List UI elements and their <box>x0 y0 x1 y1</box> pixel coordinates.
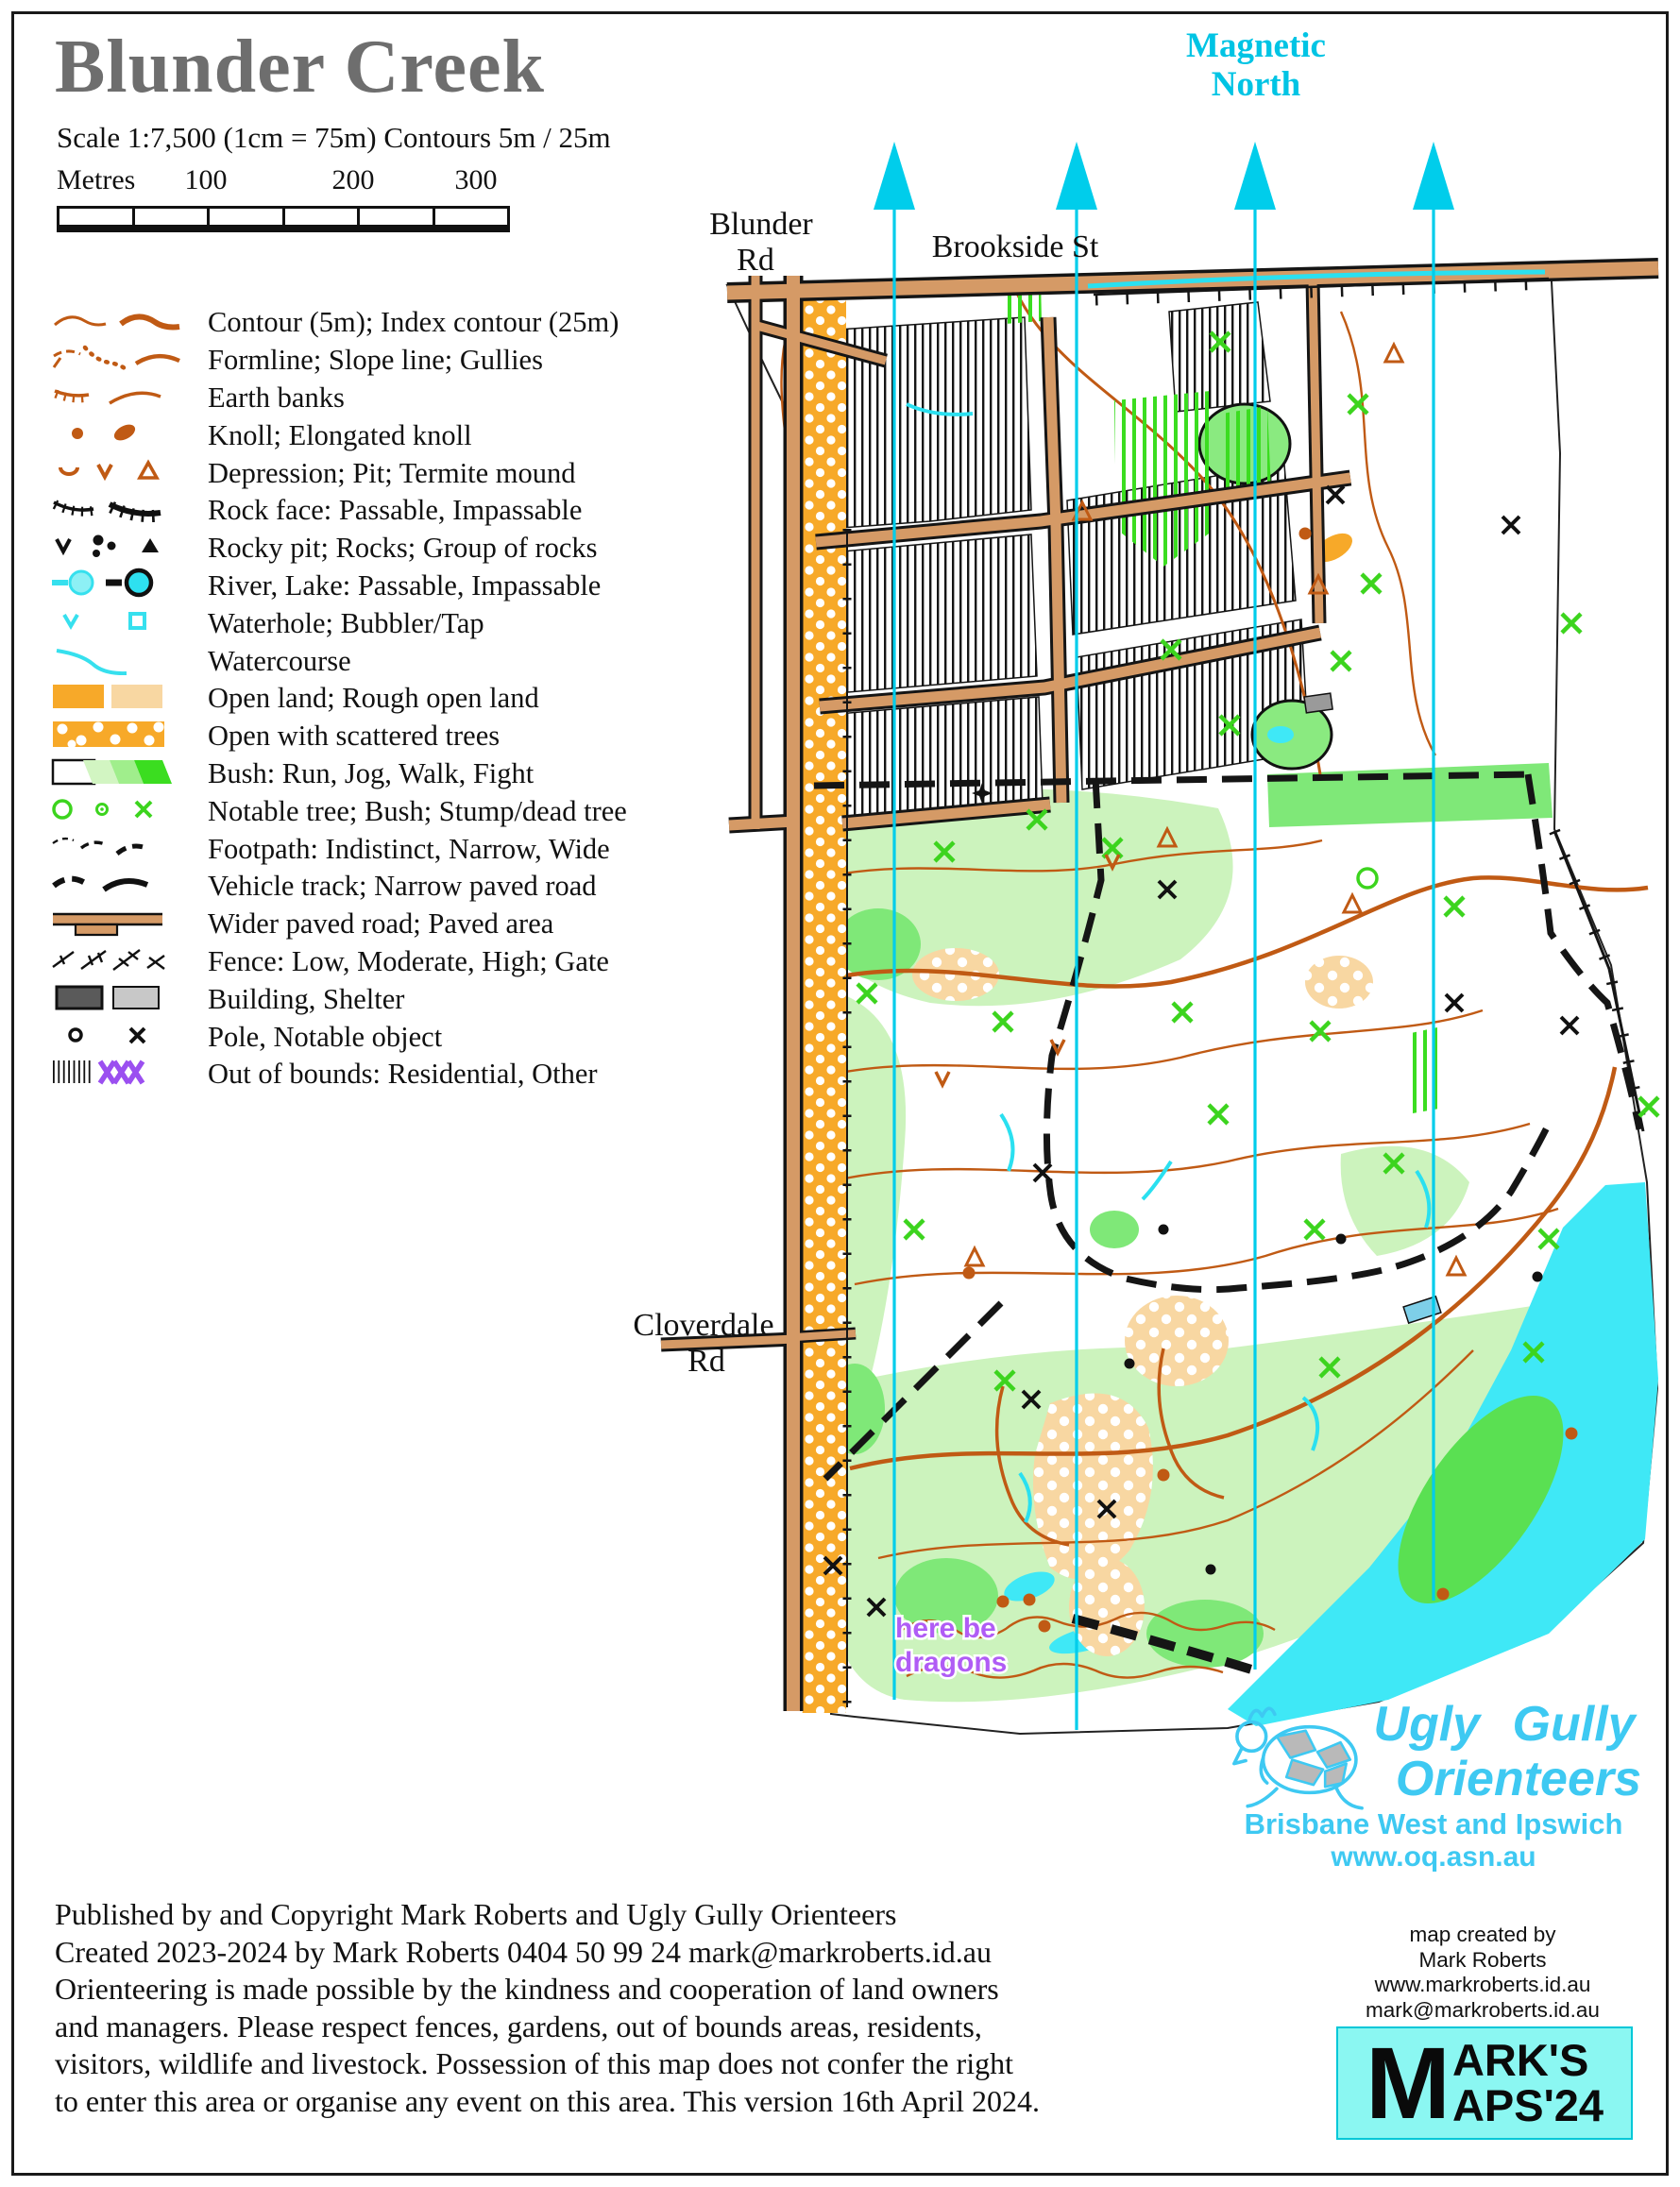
credit-line: mark@markroberts.id.au <box>1322 1998 1643 2024</box>
club-name-line1: Ugly Gully <box>1358 1696 1651 1753</box>
legend-item-label: Pole, Notable object <box>208 1021 442 1054</box>
fence-icon <box>49 943 208 980</box>
copyright-line: Created 2023-2024 by Mark Roberts 0404 5… <box>55 1934 1254 1972</box>
wider-road-icon <box>49 906 208 942</box>
open-scattered-icon <box>49 718 208 754</box>
legend-item-label: Building, Shelter <box>208 983 404 1016</box>
contour-icon <box>49 304 208 341</box>
map-symbol-bdot <box>1566 1428 1578 1440</box>
river-lake-icon <box>49 568 208 604</box>
club-logo-block: Ugly Gully Orienteers Brisbane West and … <box>1216 1692 1651 1909</box>
metres-label: Metres <box>57 164 135 196</box>
cloverdale-rd-label-2: Rd <box>687 1344 725 1379</box>
legend-item-label: Bush: Run, Jog, Walk, Fight <box>208 757 534 790</box>
scale-bar <box>57 206 510 232</box>
map-symbol-bdot <box>1158 1469 1170 1482</box>
watercourse-icon <box>49 643 208 680</box>
copyright-line: Orienteering is made possible by the kin… <box>55 1971 1254 2009</box>
club-name-line2: Orienteers <box>1377 1751 1660 1807</box>
marks-maps-logo: M ARK'S APS'24 <box>1336 2026 1633 2140</box>
magnetic-north-arrowhead-icon <box>1234 142 1276 210</box>
orienteering-map: Blunder Rd Brookside St Cloverdale Rd he… <box>491 123 1672 1747</box>
legend-item-label: Open land; Rough open land <box>208 682 539 715</box>
magnetic-north-line2: North <box>1114 65 1398 104</box>
copyright-paragraph: Published by and Copyright Mark Roberts … <box>55 1896 1254 2121</box>
legend-item-label: Waterhole; Bubbler/Tap <box>208 607 484 640</box>
vehicle-track-icon <box>49 868 208 905</box>
credit-line: Mark Roberts <box>1322 1948 1643 1974</box>
waterhole-icon <box>49 605 208 642</box>
blunder-rd-label-2: Rd <box>737 243 774 278</box>
map-symbol-bdot <box>1039 1620 1051 1633</box>
copyright-line: and managers. Please respect fences, gar… <box>55 2009 1254 2046</box>
map-symbol-kdot <box>1206 1565 1216 1575</box>
bush-icon <box>49 755 208 792</box>
magnetic-north-arrowhead-icon <box>1056 142 1097 210</box>
rock-face-icon <box>49 492 208 529</box>
rocky-pit-icon <box>49 530 208 567</box>
map-symbol-kdot <box>1336 1234 1347 1245</box>
map-symbol-gx <box>1639 1097 1658 1116</box>
pole-icon <box>49 1019 208 1056</box>
page-title: Blunder Creek <box>55 25 545 110</box>
blunder-rd-label-1: Blunder <box>709 207 813 242</box>
earth-banks-icon <box>49 380 208 416</box>
magnetic-north-label: Magnetic North <box>1114 26 1398 105</box>
notable-tree-icon <box>49 793 208 830</box>
legend-item-label: Earth banks <box>208 381 345 415</box>
oob-icon <box>49 1056 208 1093</box>
credit-line: www.markroberts.id.au <box>1322 1973 1643 1998</box>
cloverdale-rd-label-1: Cloverdale <box>633 1308 773 1343</box>
map-symbol-kdot <box>1125 1359 1135 1369</box>
scattered-trees-corridor <box>801 283 846 1713</box>
building-icon <box>49 981 208 1018</box>
map-symbol-bdot <box>1299 528 1312 540</box>
copyright-line: visitors, wildlife and livestock. Posses… <box>55 2045 1254 2083</box>
legend-item-label: Knoll; Elongated knoll <box>208 419 472 452</box>
map-symbol-bdot <box>963 1267 976 1280</box>
map-symbol-kdot <box>1159 1225 1169 1235</box>
footpath-icon <box>49 831 208 868</box>
map-symbol-bdot <box>997 1596 1010 1608</box>
depression-icon <box>49 455 208 492</box>
magnetic-north-line1: Magnetic <box>1114 26 1398 65</box>
marks-logo-bottom: APS'24 <box>1452 2083 1604 2128</box>
map-symbol-bdot <box>1024 1594 1036 1606</box>
copyright-line: Published by and Copyright Mark Roberts … <box>55 1896 1254 1934</box>
map-symbol-bdot <box>1437 1588 1450 1601</box>
metre-mark-100: 100 <box>185 164 228 196</box>
copyright-line: to enter this area or organise any event… <box>55 2083 1254 2121</box>
map-sheet: Blunder Creek Scale 1:7,500 (1cm = 75m) … <box>0 0 1680 2187</box>
brookside-st-label: Brookside St <box>932 229 1099 264</box>
map-symbol-gx <box>1562 614 1581 633</box>
turtle-rabbit-mascot-icon <box>1216 1700 1382 1818</box>
legend-item-label: Watercourse <box>208 645 351 678</box>
knoll-icon <box>49 417 208 454</box>
here-be-dragons-label-2: dragons <box>895 1647 1007 1678</box>
map-symbol-kdot <box>1533 1272 1543 1282</box>
marks-logo-big-m: M <box>1366 2042 1451 2126</box>
marks-logo-top: ARK'S <box>1452 2038 1604 2083</box>
club-website: www.oq.asn.au <box>1226 1841 1641 1873</box>
open-land-icon <box>49 680 208 717</box>
credit-line: map created by <box>1322 1923 1643 1948</box>
formline-icon <box>49 342 208 379</box>
here-be-dragons-label-1: here be <box>895 1613 996 1644</box>
magnetic-north-arrowhead-icon <box>874 142 915 210</box>
magnetic-north-arrowhead-icon <box>1413 142 1454 210</box>
metre-mark-200: 200 <box>332 164 375 196</box>
legend-item-label: Open with scattered trees <box>208 720 500 753</box>
club-region: Brisbane West and Ipswich <box>1226 1807 1641 1841</box>
